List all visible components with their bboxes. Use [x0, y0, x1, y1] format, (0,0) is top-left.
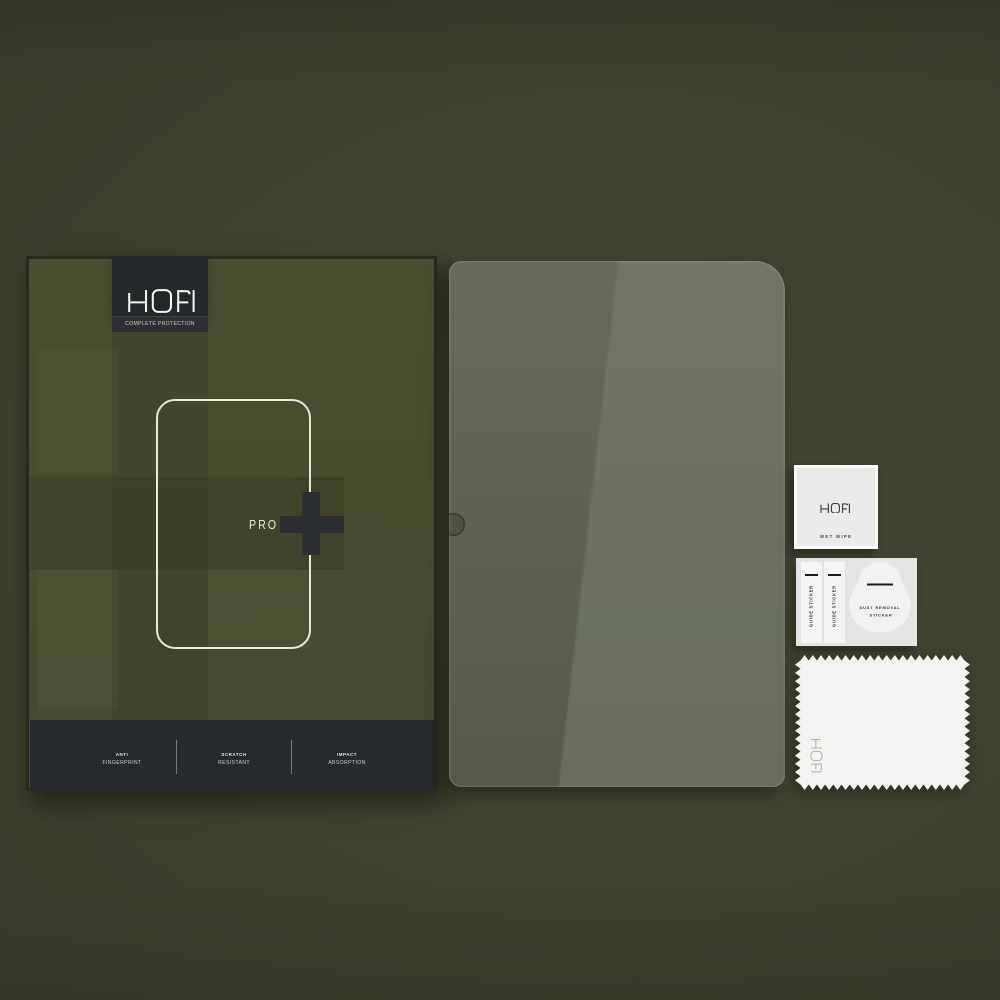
svg-text:DUST REMOVAL: DUST REMOVAL [859, 605, 900, 610]
svg-text:STICKER: STICKER [869, 613, 892, 618]
